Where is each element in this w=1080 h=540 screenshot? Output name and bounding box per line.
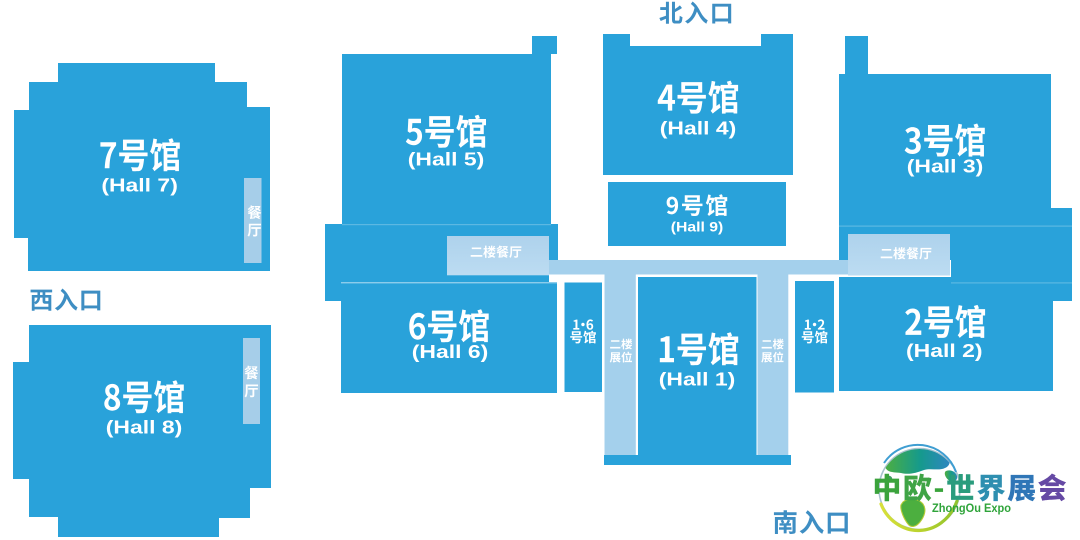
svg-text:(Hall 2): (Hall 2) [906,340,983,361]
svg-text:(Hall 7): (Hall 7) [101,175,178,196]
svg-text:(Hall 8): (Hall 8) [106,416,183,437]
svg-text:(Hall 9): (Hall 9) [671,219,724,234]
svg-text:(Hall 3): (Hall 3) [907,156,984,177]
svg-text:(Hall 5): (Hall 5) [408,149,485,170]
svg-text:(Hall 4): (Hall 4) [660,118,737,139]
svg-text:(Hall 1): (Hall 1) [659,369,736,390]
svg-text:(Hall 6): (Hall 6) [412,341,489,362]
svg-text:ZhongOu Expo: ZhongOu Expo [932,503,1011,515]
